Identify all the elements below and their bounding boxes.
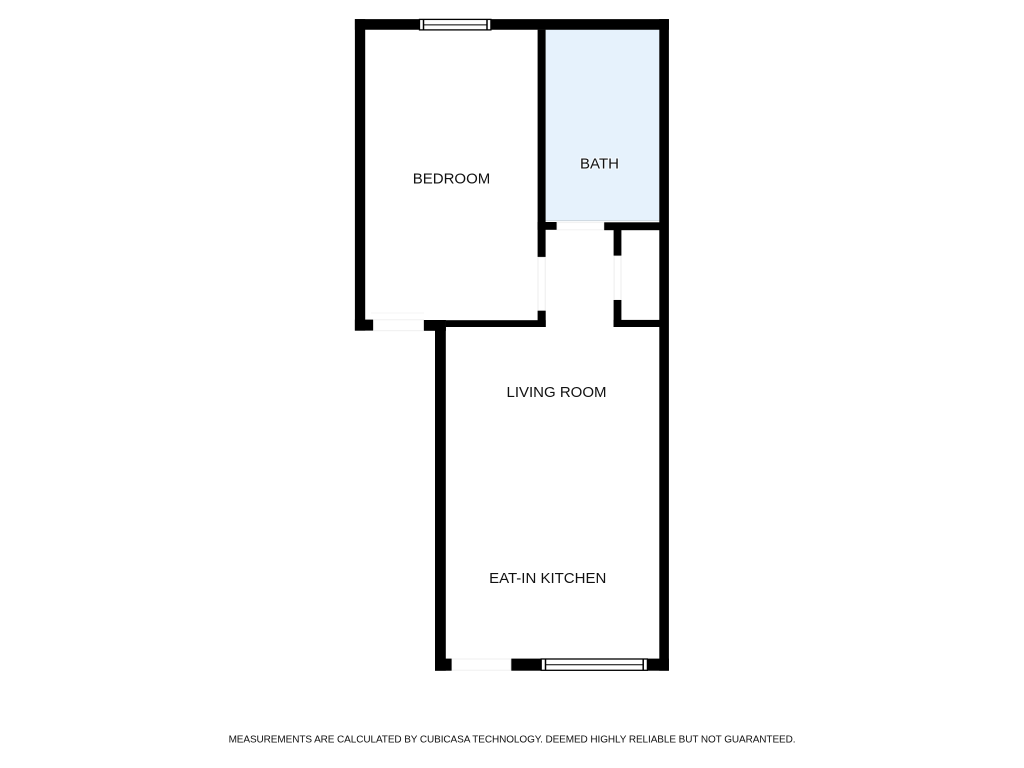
svg-text:BEDROOM: BEDROOM	[413, 171, 491, 188]
svg-text:LIVING ROOM: LIVING ROOM	[506, 384, 606, 401]
svg-text:EAT-IN KITCHEN: EAT-IN KITCHEN	[489, 570, 606, 587]
svg-text:BATH: BATH	[580, 155, 619, 172]
svg-text:MEASUREMENTS ARE CALCULATED BY: MEASUREMENTS ARE CALCULATED BY CUBICASA …	[229, 735, 796, 746]
